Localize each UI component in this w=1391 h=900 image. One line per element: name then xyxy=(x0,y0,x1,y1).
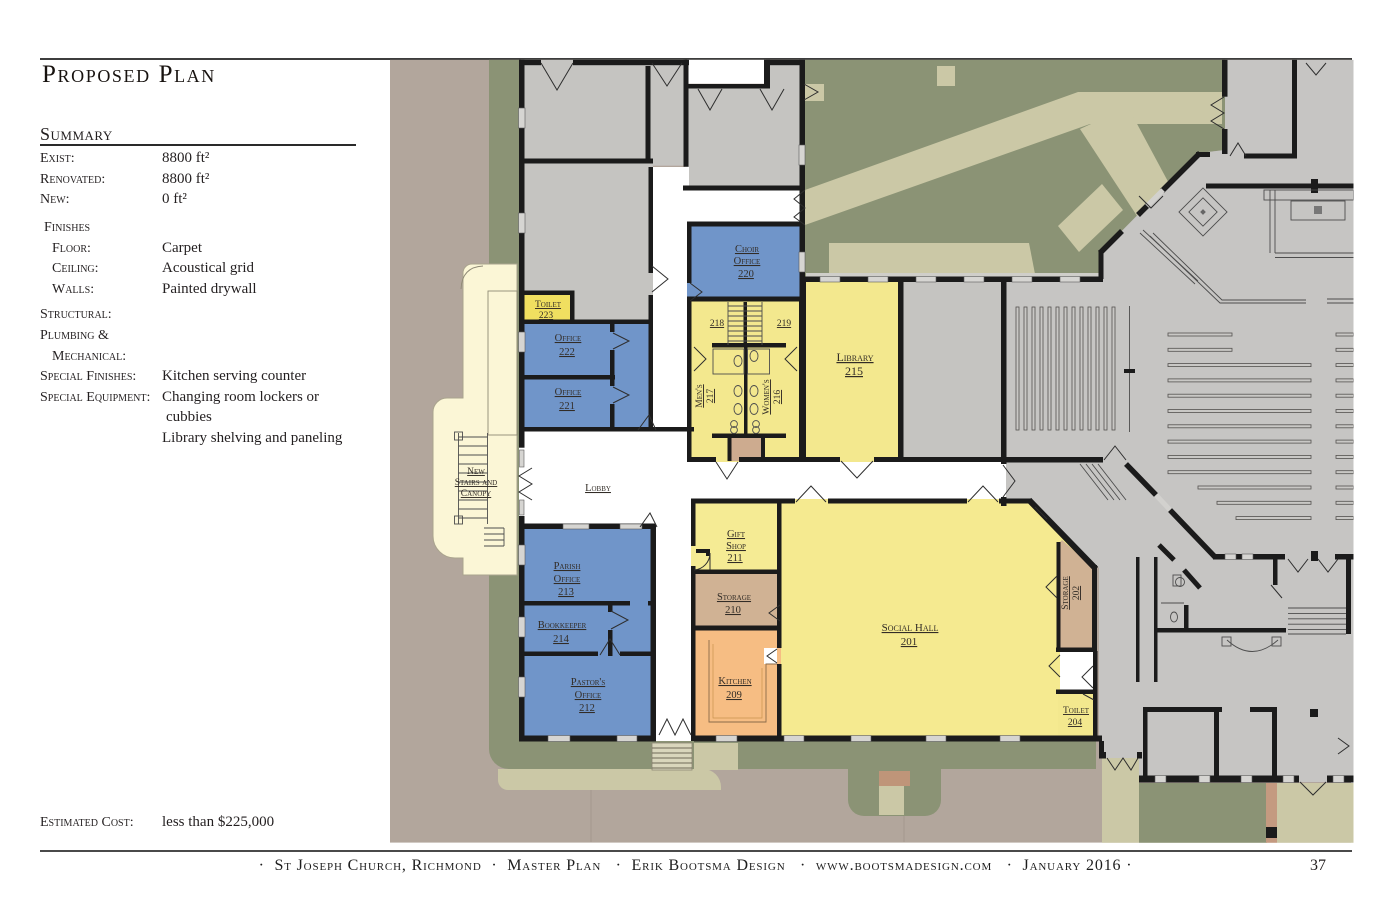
svg-text:Bookkeeper: Bookkeeper xyxy=(538,620,587,631)
svg-text:209: 209 xyxy=(726,690,742,701)
svg-text:223: 223 xyxy=(539,311,554,321)
svg-text:Toilet: Toilet xyxy=(535,300,562,310)
svg-text:Social Hall: Social Hall xyxy=(882,622,939,634)
svg-text:Storage: Storage xyxy=(717,592,751,603)
svg-text:213: 213 xyxy=(558,587,574,598)
svg-text:216: 216 xyxy=(773,390,783,405)
svg-text:Toilet: Toilet xyxy=(1063,706,1090,716)
svg-text:215: 215 xyxy=(845,364,863,378)
svg-text:220: 220 xyxy=(738,269,754,280)
svg-text:219: 219 xyxy=(777,319,792,329)
svg-text:211: 211 xyxy=(727,553,742,564)
svg-text:Office: Office xyxy=(555,333,582,344)
svg-text:Shop: Shop xyxy=(726,541,746,552)
svg-text:204: 204 xyxy=(1068,718,1083,728)
svg-text:Canopy: Canopy xyxy=(461,489,491,499)
svg-text:Library: Library xyxy=(836,350,873,364)
svg-text:Office: Office xyxy=(555,387,582,398)
svg-text:218: 218 xyxy=(710,319,725,329)
svg-text:Pastor's: Pastor's xyxy=(571,677,606,688)
svg-text:Choir: Choir xyxy=(735,244,759,255)
svg-text:Stairs and: Stairs and xyxy=(455,478,498,488)
svg-text:Storage: Storage xyxy=(1061,576,1071,610)
svg-text:202: 202 xyxy=(1072,586,1082,601)
svg-text:212: 212 xyxy=(579,703,595,714)
svg-text:Office: Office xyxy=(575,690,602,701)
svg-text:217: 217 xyxy=(706,389,716,404)
svg-text:Women's: Women's xyxy=(762,379,772,414)
svg-text:Kitchen: Kitchen xyxy=(718,676,751,687)
svg-text:Office: Office xyxy=(734,256,761,267)
svg-text:201: 201 xyxy=(901,636,918,648)
svg-text:Gift: Gift xyxy=(727,529,746,540)
svg-text:Men's: Men's xyxy=(695,384,705,407)
svg-text:Parish: Parish xyxy=(554,561,581,572)
svg-text:214: 214 xyxy=(553,634,570,645)
svg-text:Lobby: Lobby xyxy=(585,483,611,494)
svg-text:Office: Office xyxy=(554,574,581,585)
svg-text:222: 222 xyxy=(559,347,575,358)
svg-text:210: 210 xyxy=(725,605,741,616)
svg-text:221: 221 xyxy=(559,401,575,412)
svg-text:New: New xyxy=(467,467,485,477)
